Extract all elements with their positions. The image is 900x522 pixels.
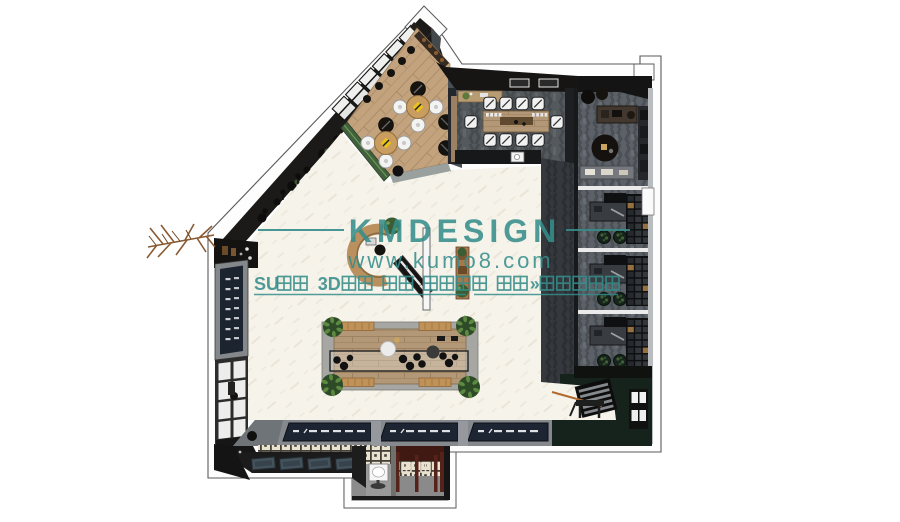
svg-text:»: » — [530, 274, 540, 294]
svg-text:www.kumo8.com: www.kumo8.com — [347, 248, 553, 273]
svg-text:KMDESIGN: KMDESIGN — [349, 213, 561, 249]
svg-text:3D: 3D — [318, 274, 341, 294]
svg-text:SU: SU — [254, 274, 279, 294]
